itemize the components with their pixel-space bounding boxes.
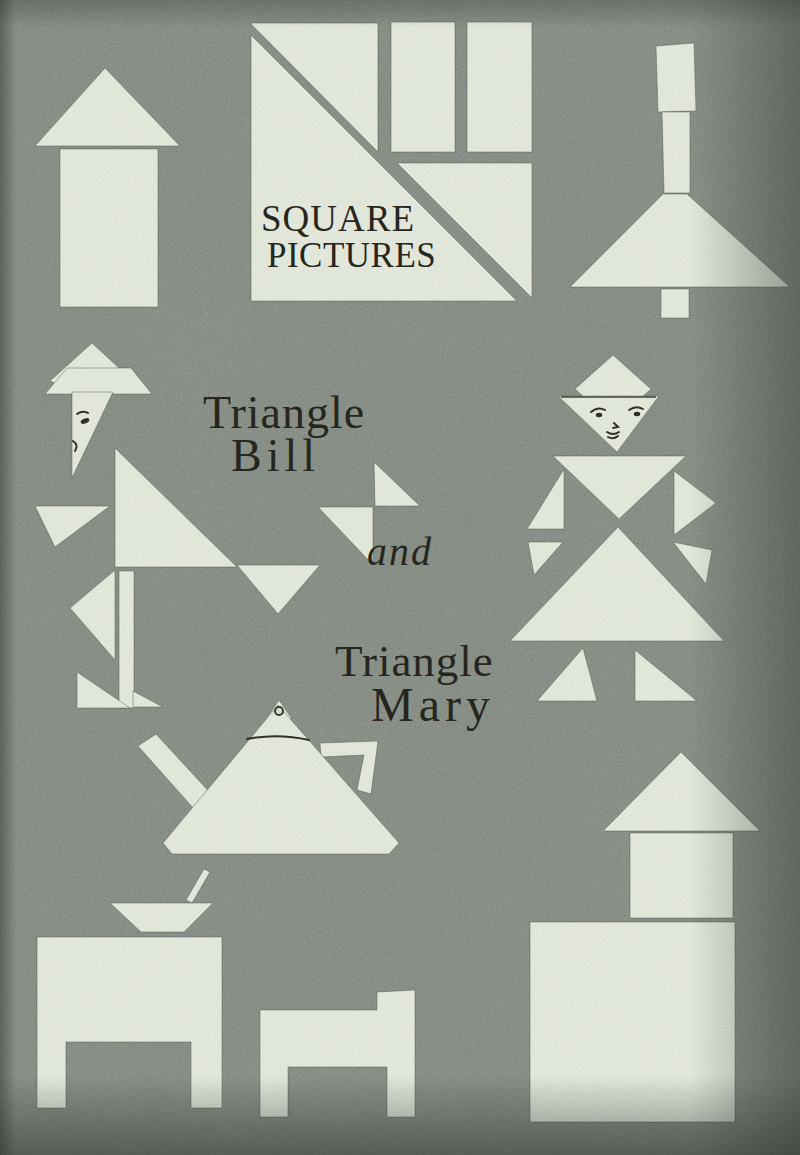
right-edge-shadow [690,0,800,1155]
page-title: SQUARE PICTURES [261,200,436,274]
caption-bill-line2: Bill [231,429,320,482]
caption-and: and [367,528,433,575]
page-title-line1: SQUARE [261,200,436,237]
cutout-figures-canvas [0,0,800,1155]
bottom-edge-shadow [0,1075,800,1155]
caption-mary-line2: Mary [371,677,495,732]
scanned-page: SQUARE PICTURES Triangle Bill and Triang… [0,0,800,1155]
left-edge-shadow [0,0,16,1155]
top-edge-shadow [0,0,800,28]
page-title-line2: PICTURES [267,237,436,274]
scan-noise-overlay [0,0,800,1155]
